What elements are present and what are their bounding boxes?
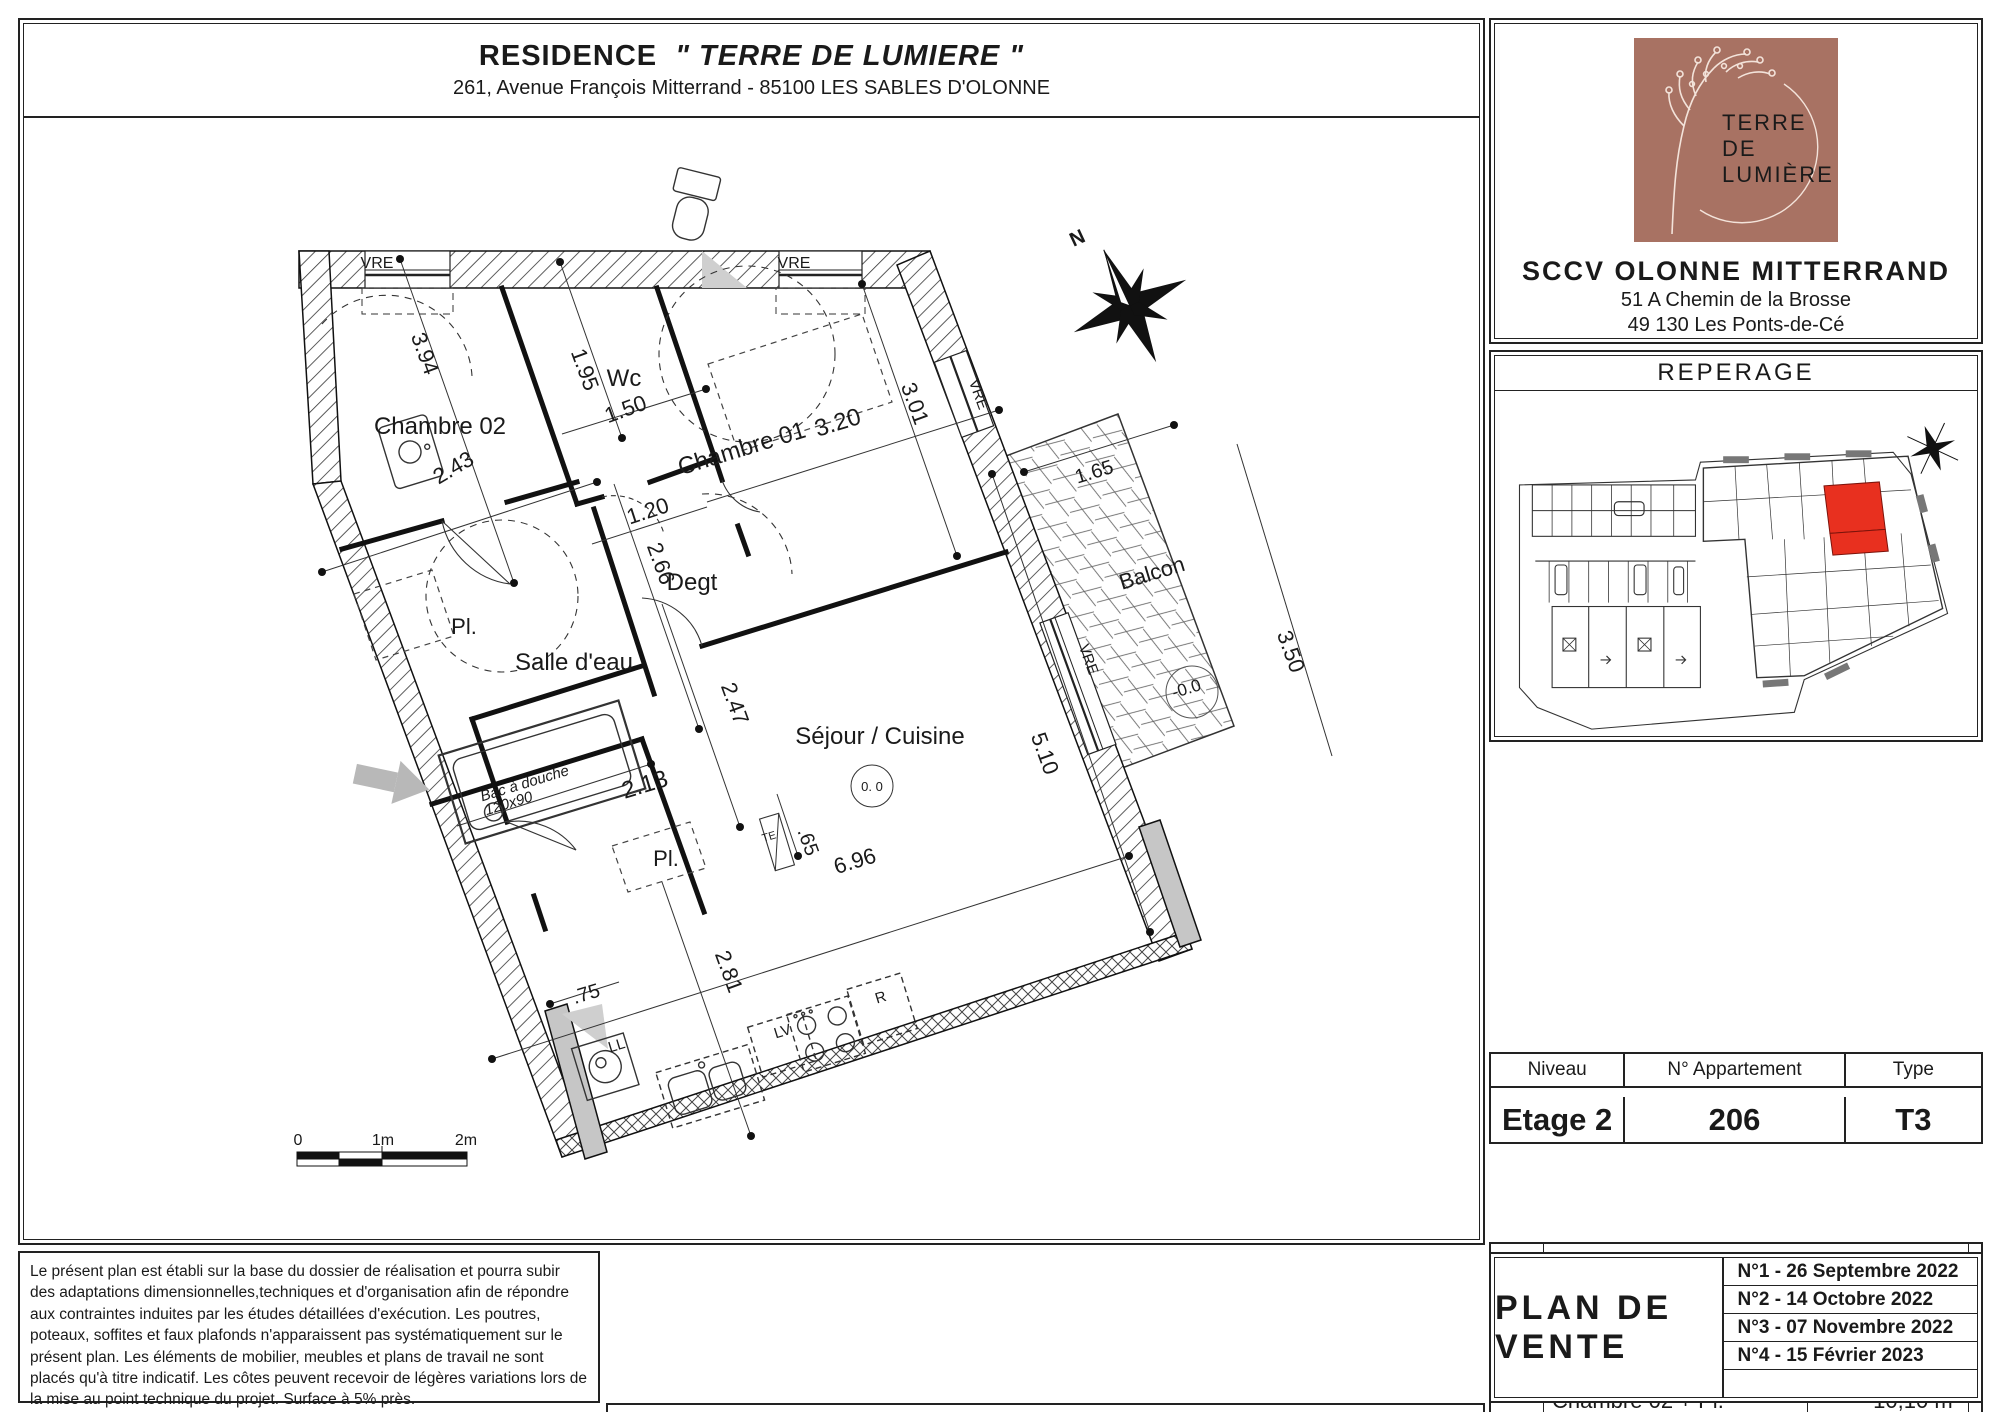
type-value: T3 xyxy=(1844,1097,1981,1142)
reperage-title: REPERAGE xyxy=(1495,356,1977,391)
disclaimer-box: Le présent plan est établi sur la base d… xyxy=(18,1251,600,1403)
plan-label: Degt xyxy=(667,569,718,596)
appartement-value: 206 xyxy=(1623,1097,1844,1142)
plan-label: 2m xyxy=(455,1132,477,1149)
legend-box: LEGENDE VRE Chassis Coulissant VRE xyxy=(606,1403,1485,1412)
svg-text:LUMIÈRE: LUMIÈRE xyxy=(1722,162,1834,187)
type-header: Type xyxy=(1844,1054,1981,1088)
niveau-value: Etage 2 xyxy=(1491,1097,1623,1142)
revision-row: N°1 - 26 Septembre 2022 xyxy=(1724,1258,1977,1286)
highlighted-unit xyxy=(1824,482,1885,533)
residence-name: " TERRE DE LUMIERE " xyxy=(675,40,1024,72)
plan-label: Salle d'eau xyxy=(515,649,633,676)
scale-bar xyxy=(297,1146,467,1166)
plan-de-vente-sheet: RESIDENCE " TERRE DE LUMIERE " 261, Aven… xyxy=(0,0,2000,1412)
brand-box: TERRE DE LUMIÈRE SCCV OLONNE MITTERRAND … xyxy=(1489,18,1983,344)
company-address1: 51 A Chemin de la Brosse xyxy=(1495,289,1977,312)
site-plan xyxy=(1495,391,1977,739)
revision-row: N°3 - 07 Novembre 2022 xyxy=(1724,1314,1977,1342)
company-address2: 49 130 Les Ponts-de-Cé xyxy=(1495,314,1977,337)
title-block: RESIDENCE " TERRE DE LUMIERE " 261, Aven… xyxy=(24,24,1479,118)
main-sheet-frame: RESIDENCE " TERRE DE LUMIERE " 261, Aven… xyxy=(18,18,1485,1245)
company-name: SCCV OLONNE MITTERRAND xyxy=(1495,256,1977,287)
residence-address: 261, Avenue François Mitterrand - 85100 … xyxy=(24,77,1479,100)
plan-label: 0 xyxy=(294,1132,303,1149)
plan-label: 1m xyxy=(372,1132,394,1149)
toilet-icon xyxy=(662,167,721,244)
unit-info-table: Niveau N° Appartement Type Etage 2 206 T… xyxy=(1489,1052,1983,1144)
plan-label: Séjour / Cuisine xyxy=(795,723,964,750)
reperage-box: REPERAGE xyxy=(1489,350,1983,742)
plan-label: Pl. xyxy=(451,614,477,639)
brand-logo: TERRE DE LUMIÈRE xyxy=(1634,38,1838,242)
plan-label: VRE xyxy=(361,255,394,272)
plan-de-vente-box: PLAN DE VENTE N°1 - 26 Septembre 2022N°2… xyxy=(1489,1252,1983,1403)
appartement-header: N° Appartement xyxy=(1623,1054,1844,1088)
niveau-header: Niveau xyxy=(1491,1054,1623,1088)
plan-de-vente-title: PLAN DE VENTE xyxy=(1495,1258,1722,1397)
revision-row-empty xyxy=(1724,1370,1977,1397)
revision-row: N°2 - 14 Octobre 2022 xyxy=(1724,1286,1977,1314)
plan-label: Pl. xyxy=(653,846,679,871)
plan-label: Wc xyxy=(607,365,642,392)
plan-label: 0. 0 xyxy=(861,779,883,794)
plan-label: 3.50 xyxy=(1272,627,1310,676)
compass-icon xyxy=(1048,224,1213,389)
plan-label: N xyxy=(1066,226,1088,252)
disclaimer-text: Le présent plan est établi sur la base d… xyxy=(20,1253,598,1412)
revision-rows: N°1 - 26 Septembre 2022N°2 - 14 Octobre … xyxy=(1722,1258,1977,1397)
plan-label: Chambre 02 xyxy=(374,413,506,440)
floor-plan-drawing: VREVREVREVREChambre 022.433.941.95Wc1.50… xyxy=(24,116,1481,1240)
svg-text:DE: DE xyxy=(1722,136,1757,161)
residence-title: RESIDENCE " TERRE DE LUMIERE " xyxy=(24,40,1479,73)
revision-row: N°4 - 15 Février 2023 xyxy=(1724,1342,1977,1370)
plan-label: VRE xyxy=(778,255,811,272)
svg-text:TERRE: TERRE xyxy=(1722,110,1807,135)
